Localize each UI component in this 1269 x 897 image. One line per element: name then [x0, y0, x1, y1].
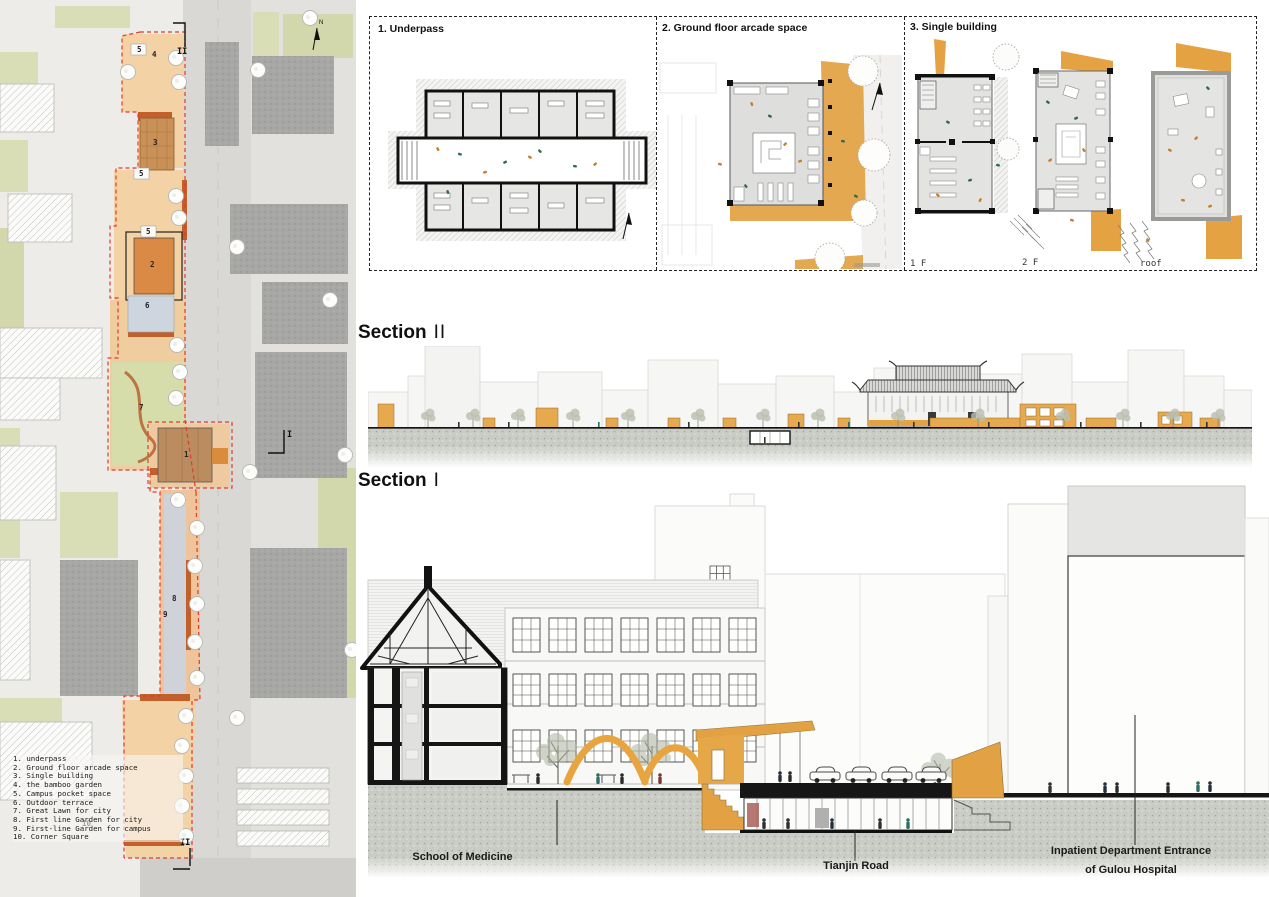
section2-drawing: [368, 346, 1252, 468]
gallery-artwork: [747, 803, 759, 827]
marker-2: 2: [150, 260, 155, 269]
site-plan: 5 4 3 5 5 2 6 7 1 8 9 10 II I II N 1. un…: [0, 0, 356, 897]
gallery-sculpture: [815, 808, 829, 828]
site-legend: 1. underpass 2. Ground floor arcade spac…: [13, 755, 183, 842]
marker-3: 3: [153, 138, 158, 147]
marker-5a: 5: [137, 45, 142, 54]
section-mark-ii-top: II: [177, 47, 187, 57]
plans-strip: 1. Underpass 2. Ground floor arcade spac…: [369, 16, 1257, 271]
legend-item: 10. Corner Square: [13, 833, 183, 842]
plan-roof: [1118, 43, 1242, 263]
section2-title: SectionII: [358, 322, 446, 344]
marker-6: 6: [145, 301, 150, 310]
north-label: N: [319, 20, 323, 26]
road-deck: [740, 783, 952, 798]
panel1-label: 1. Underpass: [378, 23, 444, 35]
presentation-board: 5 4 3 5 5 2 6 7 1 8 9 10 II I II N 1. un…: [0, 0, 1269, 897]
section1-drawing: [360, 478, 1269, 878]
marker-7: 7: [139, 403, 144, 412]
arcade-plan: [658, 55, 902, 269]
marker-8: 8: [172, 594, 177, 603]
marker-9: 9: [163, 610, 168, 619]
ground-line: [368, 427, 1252, 429]
building-1-entry: [212, 448, 228, 464]
floor-label-2f: 2 F: [1022, 258, 1038, 268]
floor-label-1f: 1 F: [910, 259, 926, 269]
label-school-of-medicine: School of Medicine: [400, 851, 525, 863]
label-tianjin-road: Tianjin Road: [800, 860, 912, 872]
floor-label-roof: roof: [1140, 259, 1162, 269]
plan-1f: [915, 39, 1019, 214]
cross-street: [140, 858, 356, 897]
label-hospital-line1: Inpatient Department Entrance: [1032, 845, 1230, 857]
section2-numeral: II: [434, 322, 447, 343]
panel-divider: [904, 17, 905, 270]
marker-5b: 5: [139, 169, 144, 178]
marker-4: 4: [152, 50, 157, 59]
underpass-gallery: [744, 798, 952, 830]
underpass-below-grade: [750, 431, 790, 444]
panel2-label: 2. Ground floor arcade space: [662, 22, 807, 34]
label-hospital-line2: of Gulou Hospital: [1032, 864, 1230, 876]
single-building-plans: [906, 29, 1256, 267]
plan-2f: [1010, 51, 1121, 251]
panel-divider: [656, 17, 657, 270]
hospital-tower-cap: [1068, 486, 1245, 556]
marker-1: 1: [184, 450, 189, 459]
marker-5c: 5: [146, 227, 151, 236]
hospital-buildings: [988, 486, 1269, 796]
section2-word: Section: [358, 322, 427, 343]
section-mark-i: I: [287, 430, 292, 440]
hospital-tower: [1068, 556, 1245, 796]
underpass-plan: [388, 53, 656, 265]
terrace-6: [128, 296, 174, 332]
